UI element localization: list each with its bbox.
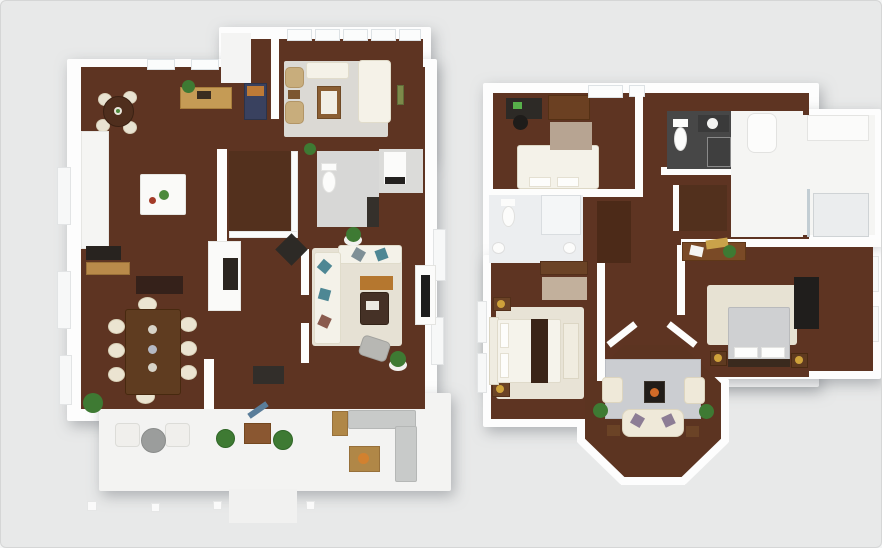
bedroom1-rug <box>550 122 592 150</box>
turret-side-table-1 <box>607 425 620 436</box>
floorplan-render-canvas <box>0 0 882 548</box>
bedroom2-footboard <box>728 359 790 367</box>
turret-fire <box>650 388 659 397</box>
bedroom2-lamp-2 <box>795 356 803 364</box>
master-bed-runner <box>531 319 548 383</box>
bath2-shower-glass <box>807 189 810 237</box>
hall-bath-shower <box>707 137 731 167</box>
master-dresser-rug <box>542 277 587 300</box>
wall2-master-right <box>597 261 605 381</box>
turret-plant-2 <box>699 404 714 419</box>
master-window-bump-2 <box>477 353 487 393</box>
bedroom2-pillow-2 <box>761 347 785 358</box>
master-pillow-1 <box>500 323 509 348</box>
bath2-shower <box>813 193 869 237</box>
bath2-counter <box>807 115 869 141</box>
master-lamp-1 <box>497 300 505 308</box>
master-window-bump-1 <box>477 301 487 343</box>
bedroom1-pillow-1 <box>529 177 551 187</box>
hall-bath-sink <box>707 118 718 129</box>
bath3-shower <box>541 195 581 235</box>
turret-plant-1 <box>593 403 608 418</box>
upper-staircase <box>679 185 727 231</box>
bedroom1-desk-chair <box>513 115 528 130</box>
bath2-tub <box>747 113 777 153</box>
scene <box>1 1 881 547</box>
upper-stair-railing <box>673 185 679 231</box>
bedroom1-window <box>588 85 623 98</box>
upper-closet-floor <box>597 201 631 263</box>
turret-armchair-2 <box>684 377 705 404</box>
turret-side-table-2 <box>686 426 699 437</box>
wall2-bedroom1-right <box>635 93 643 197</box>
bedroom2-bookcase <box>794 277 819 329</box>
bath3-toilet <box>502 206 515 227</box>
bedroom1-pillow-2 <box>557 177 579 187</box>
bedroom1-desk-item <box>513 102 522 109</box>
master-dresser <box>540 261 588 275</box>
bedroom1-dresser <box>548 95 590 120</box>
bath3-toilet-tank <box>501 199 515 206</box>
bath3-sink-2 <box>563 242 576 254</box>
hall-bath-toilet-tank <box>673 119 688 127</box>
bath3-sink-1 <box>492 242 505 254</box>
master-bench <box>563 323 579 379</box>
bedroom2-pillow-1 <box>734 347 758 358</box>
master-pillow-2 <box>500 353 509 378</box>
hall-console-plant <box>723 245 736 258</box>
bedroom2-lamp-1 <box>714 354 722 362</box>
second-floor-plan <box>1 1 881 547</box>
turret-armchair-1 <box>602 377 623 403</box>
hall-bath-toilet <box>674 127 687 151</box>
master-lamp-2 <box>496 385 504 393</box>
